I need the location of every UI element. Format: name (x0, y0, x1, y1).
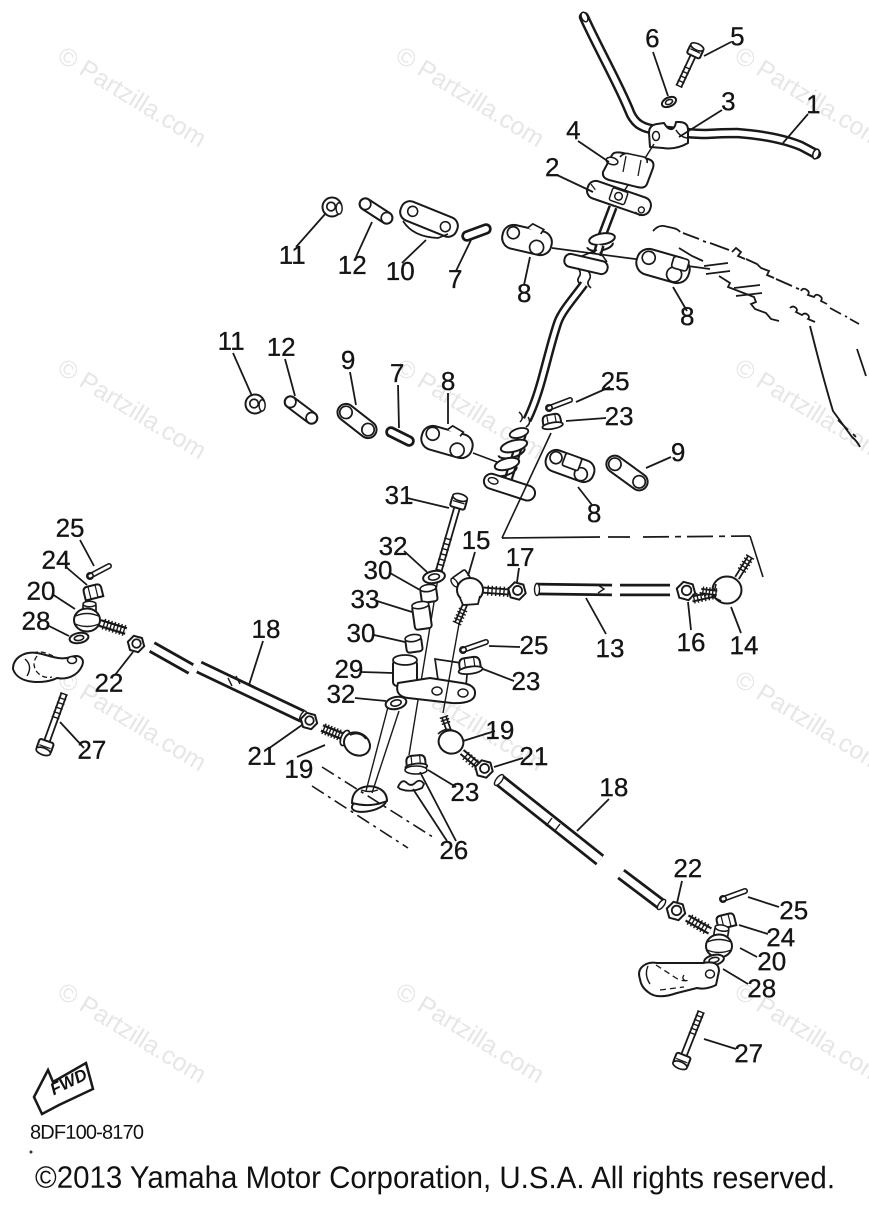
svg-text:25: 25 (779, 895, 808, 925)
svg-text:18: 18 (252, 614, 281, 644)
svg-text:21: 21 (519, 741, 548, 771)
svg-text:3: 3 (721, 86, 735, 116)
svg-text:20: 20 (757, 946, 786, 976)
svg-text:8: 8 (441, 366, 455, 396)
svg-text:22: 22 (673, 853, 702, 883)
svg-text:25: 25 (601, 366, 630, 396)
svg-text:33: 33 (351, 584, 380, 614)
svg-text:4: 4 (566, 115, 580, 145)
svg-text:12: 12 (338, 250, 367, 280)
svg-text:7: 7 (390, 358, 404, 388)
svg-text:5: 5 (730, 21, 744, 51)
svg-text:7: 7 (448, 264, 462, 294)
svg-text:25: 25 (519, 630, 548, 660)
svg-text:19: 19 (485, 715, 514, 745)
svg-text:6: 6 (645, 23, 659, 53)
svg-text:23: 23 (450, 777, 479, 807)
svg-text:27: 27 (77, 735, 106, 765)
svg-text:16: 16 (676, 627, 705, 657)
svg-text:30: 30 (347, 618, 376, 648)
svg-text:26: 26 (439, 835, 468, 865)
svg-text:8: 8 (517, 278, 531, 308)
svg-text:28: 28 (22, 606, 51, 636)
svg-text:21: 21 (247, 741, 276, 771)
svg-text:1: 1 (806, 89, 820, 119)
svg-text:11: 11 (279, 240, 306, 270)
svg-text:18: 18 (599, 772, 628, 802)
svg-text:8: 8 (587, 498, 601, 528)
svg-text:30: 30 (364, 555, 393, 585)
svg-text:23: 23 (511, 666, 540, 696)
svg-text:14: 14 (729, 630, 758, 660)
svg-text:28: 28 (747, 973, 776, 1003)
svg-text:31: 31 (385, 480, 414, 510)
svg-text:8: 8 (680, 301, 694, 331)
svg-text:19: 19 (284, 754, 313, 784)
svg-text:25: 25 (56, 513, 85, 543)
svg-text:9: 9 (671, 437, 685, 467)
svg-text:20: 20 (27, 576, 56, 606)
svg-text:22: 22 (94, 668, 123, 698)
svg-text:10: 10 (386, 256, 415, 286)
svg-text:32: 32 (326, 679, 355, 709)
svg-text:9: 9 (341, 345, 355, 375)
svg-text:23: 23 (605, 401, 634, 431)
svg-text:12: 12 (267, 332, 296, 362)
svg-text:13: 13 (595, 633, 624, 663)
svg-text:11: 11 (218, 326, 245, 356)
svg-text:15: 15 (462, 525, 491, 555)
svg-text:©2013 Yamaha Motor Corporation: ©2013 Yamaha Motor Corporation, U.S.A. A… (35, 1160, 835, 1196)
svg-text:24: 24 (42, 545, 71, 575)
svg-text:27: 27 (734, 1038, 763, 1068)
svg-text:17: 17 (506, 542, 535, 572)
svg-text:2: 2 (545, 152, 559, 182)
svg-text:8DF100-8170: 8DF100-8170 (30, 1122, 144, 1144)
